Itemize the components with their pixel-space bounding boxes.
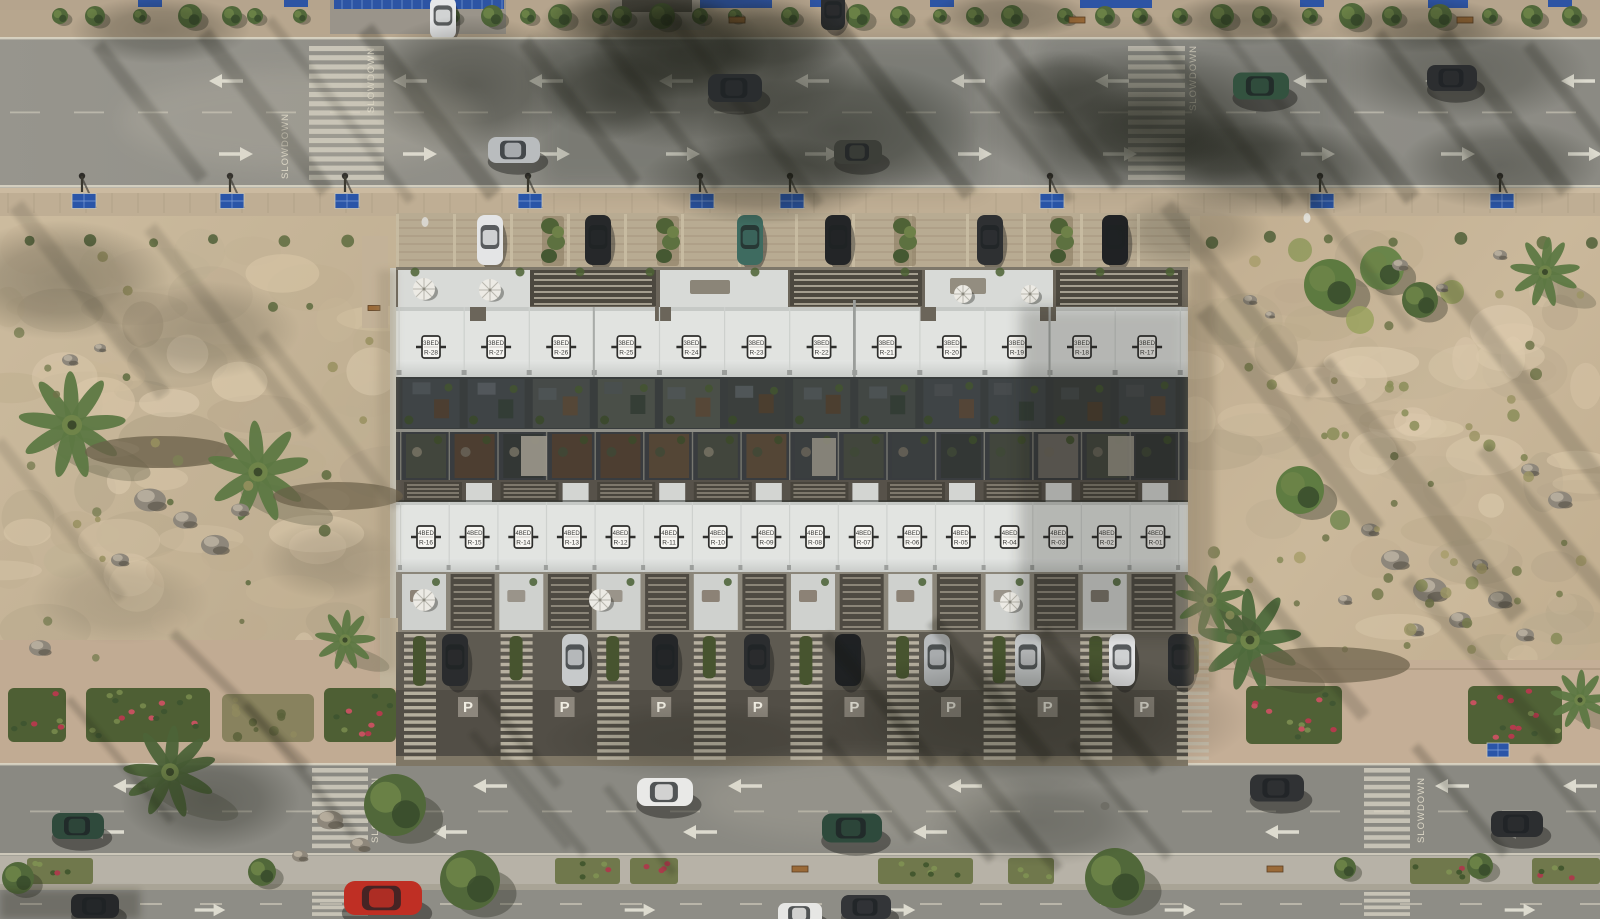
svg-text:3BED: 3BED — [879, 341, 895, 347]
svg-text:R-06: R-06 — [905, 539, 919, 546]
svg-text:4BED: 4BED — [467, 531, 483, 537]
svg-text:3BED: 3BED — [553, 341, 569, 347]
svg-text:R-07: R-07 — [857, 539, 871, 546]
svg-text:4BED: 4BED — [904, 531, 920, 537]
svg-text:R-10: R-10 — [711, 539, 725, 546]
svg-text:3BED: 3BED — [618, 341, 634, 347]
svg-text:R-09: R-09 — [759, 539, 773, 546]
svg-text:4BED: 4BED — [613, 531, 629, 537]
svg-text:3BED: 3BED — [488, 341, 504, 347]
svg-text:R-28: R-28 — [424, 349, 438, 356]
svg-text:4BED: 4BED — [759, 531, 775, 537]
svg-text:R-12: R-12 — [613, 539, 627, 546]
svg-text:R-27: R-27 — [489, 349, 503, 356]
svg-text:4BED: 4BED — [1002, 531, 1018, 537]
svg-text:4BED: 4BED — [856, 531, 872, 537]
svg-text:R-22: R-22 — [815, 349, 829, 356]
svg-text:4BED: 4BED — [564, 531, 580, 537]
svg-text:P: P — [463, 699, 473, 716]
svg-text:R-26: R-26 — [554, 349, 568, 356]
svg-text:4BED: 4BED — [418, 531, 434, 537]
svg-text:R-04: R-04 — [1003, 539, 1017, 546]
svg-text:R-08: R-08 — [808, 539, 822, 546]
svg-text:4BED: 4BED — [953, 531, 969, 537]
svg-text:3BED: 3BED — [814, 341, 830, 347]
svg-text:R-05: R-05 — [954, 539, 968, 546]
svg-text:4BED: 4BED — [661, 531, 677, 537]
svg-text:4BED: 4BED — [807, 531, 823, 537]
svg-text:R-13: R-13 — [565, 539, 579, 546]
svg-text:3BED: 3BED — [749, 341, 765, 347]
svg-text:R-23: R-23 — [749, 349, 763, 356]
svg-text:3BED: 3BED — [423, 341, 439, 347]
svg-text:R-21: R-21 — [880, 349, 894, 356]
svg-text:3BED: 3BED — [684, 341, 700, 347]
svg-text:SLOWDOWN: SLOWDOWN — [1416, 777, 1427, 843]
svg-text:R-24: R-24 — [684, 349, 698, 356]
svg-text:R-14: R-14 — [516, 539, 530, 546]
svg-text:R-20: R-20 — [945, 349, 959, 356]
svg-text:R-16: R-16 — [419, 539, 433, 546]
svg-text:R-11: R-11 — [662, 539, 676, 546]
svg-text:P: P — [560, 699, 570, 716]
svg-text:3BED: 3BED — [944, 341, 960, 347]
svg-text:R-15: R-15 — [468, 539, 482, 546]
svg-text:4BED: 4BED — [710, 531, 726, 537]
svg-text:R-25: R-25 — [619, 349, 633, 356]
svg-text:4BED: 4BED — [515, 531, 531, 537]
